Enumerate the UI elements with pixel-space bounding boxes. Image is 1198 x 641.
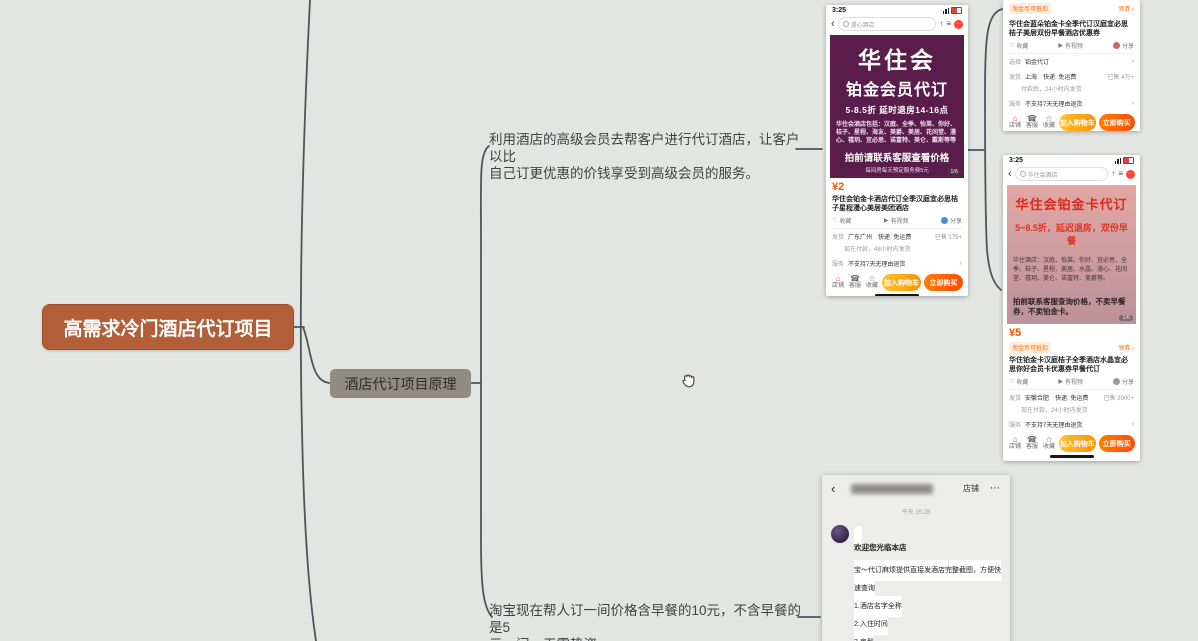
mindmap-canvas[interactable]: 高需求冷门酒店代订项目 酒店代订项目原理 利用酒店的高级会员去帮客户进行代订酒店… [0, 0, 1198, 641]
bar-service-label: 客服 [1026, 123, 1038, 130]
chip-video: 有视频 [891, 216, 909, 225]
screenshot-taobao-listing-2[interactable]: 淘金币可抵扣 领券 › 华住会蓝朵铂金卡全季代订汉庭宜必思桔子美居双份早餐酒店优… [1003, 0, 1140, 131]
sold-count: 已售 175+ [935, 232, 962, 241]
bar-shop-label: 店铺 [832, 283, 844, 290]
bar-service-label: 客服 [849, 283, 861, 290]
avatar [1113, 378, 1120, 385]
chip-video: 有视频 [1065, 377, 1083, 386]
add-to-cart-button: 加入购物车 [1059, 435, 1096, 452]
home-indicator [1050, 455, 1094, 458]
chevron-right-icon: › [1132, 7, 1134, 13]
more-icon: ⋯ [990, 483, 1001, 494]
customer-service-icon: ☎ [1027, 436, 1037, 444]
product-banner-pink: 华住会铂金卡代订 5~8.5折，延迟退房，双份早餐 华住酒店：汉庭、怡莱、你好、… [1007, 185, 1136, 324]
search-bar: 华住会酒店 [1015, 167, 1109, 181]
account-badge-icon: ⋯ [954, 20, 963, 29]
product-title: 华住会蓝朵铂金卡全季代订汉庭宜必思桔子美居双份早餐酒店优惠券 [1009, 20, 1134, 38]
root-node-label: 高需求冷门酒店代订项目 [63, 314, 272, 341]
image-page-badge: 1/6 [1119, 315, 1133, 321]
branch-node-label: 酒店代订项目原理 [345, 374, 457, 394]
banner-cta: 拍前请联系客服查看价格 [834, 150, 960, 164]
service-value: 不支持7天无理由退货 [1025, 99, 1082, 108]
banner-fee: 每间房每天预定服务费5元 [834, 166, 960, 174]
customer-service-icon: ☎ [1027, 115, 1037, 123]
blurred-shop-name [851, 484, 933, 494]
banner-subtitle: 5-8.5折 延时退房14-16点 [834, 104, 960, 116]
status-bar: 3:25 [826, 5, 968, 14]
status-time: 3:25 [832, 7, 846, 14]
chip-share: 分享 [1122, 377, 1134, 386]
chevron-right-icon: › [1132, 100, 1134, 107]
service-label: 服务 [1009, 420, 1021, 429]
coupon-link: 领券 [1118, 7, 1130, 13]
search-bar: 漫心酒店 [838, 17, 937, 31]
service-value: 不支持7天无理由退货 [848, 259, 905, 268]
banner-subtitle: 5~8.5折，延迟退房，双份早餐 [1013, 221, 1130, 247]
service-label: 服务 [832, 259, 844, 268]
bar-favorite-label: 收藏 [866, 283, 878, 290]
video-icon: ▶ [1058, 42, 1063, 49]
screenshot-taobao-listing-1[interactable]: 3:25 ‹ 漫心酒店 ↑ ≡ ⋯ 华住会 铂金会员代订 5-8.5折 延时退房… [826, 5, 968, 296]
sold-count: 已售 3000+ [1103, 393, 1134, 402]
heart-icon: ♡ [1009, 378, 1014, 385]
product-title: 华住会铂金卡酒店代订全季汉庭宜必思桔子星程漫心美居美团酒店 [832, 195, 962, 213]
bar-shop-label: 店铺 [1009, 123, 1021, 130]
coin-tag: 淘金币可抵扣 [1009, 3, 1051, 14]
back-icon: ‹ [1008, 169, 1012, 180]
heart-icon: ♡ [832, 217, 837, 224]
chat-message: 宝～代订麻烦提供直接发酒店完整截图，方便快速查询 1.酒店名字全称 2.入住时间… [854, 567, 1001, 641]
bar-favorite-label: 收藏 [1043, 123, 1055, 130]
chevron-right-icon: › [960, 260, 962, 267]
grab-cursor-icon [679, 371, 698, 390]
search-text: 漫心酒店 [851, 20, 875, 29]
pay-note: 现在付款，48小时内发货 [826, 244, 968, 256]
note-taobao-price[interactable]: 淘宝现在帮人订一间价格含早餐的10元，不含早餐的是5 元一间。无需垫资 [489, 602, 809, 641]
product-price: ¥2 [832, 181, 962, 193]
shop-icon: ⌂ [1013, 115, 1018, 123]
video-icon: ▶ [1058, 378, 1063, 385]
chip-share: 分享 [950, 216, 962, 225]
pay-note: 付款后，24小时内发货 [1003, 84, 1140, 96]
cart-icon: ≡ [946, 20, 951, 28]
cart-icon: ≡ [1118, 170, 1123, 178]
branch-node-principle[interactable]: 酒店代订项目原理 [330, 369, 471, 398]
heart-icon: ♡ [1009, 42, 1014, 49]
ship-label: 发货 [1009, 72, 1021, 81]
customer-service-icon: ☎ [850, 275, 860, 283]
ship-value: 广东广州 快递: 免运费 [848, 232, 911, 241]
battery-icon [1123, 157, 1134, 164]
status-bar: 3:25 [1003, 155, 1140, 164]
screenshot-chat[interactable]: ‹ 店铺 ⋯ 今天 15:28 欢迎您光临本店 宝～代订麻烦提供直接发酒店完整截… [822, 475, 1010, 641]
banner-cta: 拍前联系客服查询价格，不卖早餐券，不卖铂金卡。 [1013, 297, 1130, 317]
ship-label: 发货 [832, 232, 844, 241]
bar-shop-label: 店铺 [1009, 444, 1021, 451]
chevron-right-icon: › [1132, 58, 1134, 65]
chat-bubble: 欢迎您光临本店 宝～代订麻烦提供直接发酒店完整截图，方便快速查询 1.酒店名字全… [854, 526, 1001, 641]
chip-video: 有视频 [1065, 41, 1083, 50]
sold-count: 已售 4万+ [1107, 72, 1134, 81]
coupon-link: 领券 [1118, 346, 1130, 352]
chat-timestamp: 今天 15:28 [822, 507, 1010, 516]
image-page-badge: 1/6 [947, 169, 961, 175]
account-badge-icon: ⋯ [1126, 170, 1135, 179]
signal-icon [1115, 158, 1122, 164]
banner-title: 华住会铂金卡代订 [1013, 194, 1130, 213]
buy-now-button: 立即购买 [924, 274, 963, 291]
bar-service-label: 客服 [1026, 444, 1038, 451]
buy-now-button: 立即购买 [1099, 114, 1136, 131]
ship-value: 上海 快递: 免运费 [1025, 72, 1076, 81]
chevron-right-icon: › [1132, 421, 1134, 428]
chat-welcome: 欢迎您光临本店 [854, 543, 1001, 554]
search-text: 华住会酒店 [1028, 170, 1058, 179]
share-icon: ↑ [939, 20, 943, 28]
chip-favorite: 收藏 [1016, 377, 1028, 386]
sku-value: 铂金代订 [1025, 57, 1049, 66]
product-banner-purple: 华住会 铂金会员代订 5-8.5折 延时退房14-16点 华住会酒店包括：汉庭、… [830, 35, 964, 178]
buy-now-button: 立即购买 [1099, 435, 1136, 452]
shop-avatar [831, 525, 849, 543]
chevron-right-icon: › [1132, 346, 1134, 352]
chip-share: 分享 [1122, 41, 1134, 50]
back-icon: ‹ [831, 19, 835, 30]
banner-brand-list: 华住酒店：汉庭、怡莱、你好、宜必思、全季、桔子、星程、美居、水晶、漫心、花间堂、… [1013, 257, 1130, 284]
star-icon: ☆ [1045, 115, 1052, 123]
status-time: 3:25 [1009, 157, 1023, 164]
chip-favorite: 收藏 [1016, 41, 1028, 50]
service-label: 服务 [1009, 99, 1021, 108]
banner-brand: 华住会 [834, 41, 960, 75]
service-value: 不支持7天无理由退货 [1025, 420, 1082, 429]
banner-brand-list: 华住会酒店包括：汉庭、全季、怡莱、你好、桔子、星程、海友、美爵、美居、花间堂、漫… [836, 121, 958, 145]
banner-title: 铂金会员代订 [834, 76, 960, 100]
bar-favorite-label: 收藏 [1043, 444, 1055, 451]
search-icon [843, 21, 849, 27]
star-icon: ☆ [868, 275, 875, 283]
root-node[interactable]: 高需求冷门酒店代订项目 [42, 304, 294, 350]
home-indicator [875, 294, 919, 296]
pay-note: 现在付款，24小时内发货 [1003, 405, 1140, 417]
note-member-booking[interactable]: 利用酒店的高级会员去帮客户进行代订酒店，让客户以比 自己订更优惠的价钱享受到高级… [489, 131, 809, 182]
share-icon: ↑ [1111, 170, 1115, 178]
product-title: 华住铂金卡汉庭桔子全季酒店水晶宜必思你好会员卡优惠券早餐代订 [1009, 356, 1134, 374]
star-icon: ☆ [1045, 436, 1052, 444]
add-to-cart-button: 加入购物车 [1059, 114, 1096, 131]
signal-icon [943, 8, 950, 14]
battery-icon [951, 7, 962, 14]
shop-icon: ⌂ [1013, 436, 1018, 444]
back-icon: ‹ [831, 482, 835, 495]
avatar [1113, 42, 1120, 49]
ship-value: 安徽合肥 快递: 免运费 [1025, 393, 1088, 402]
avatar [941, 217, 948, 224]
chip-favorite: 收藏 [839, 216, 851, 225]
shop-button: 店铺 [963, 483, 979, 494]
add-to-cart-button: 加入购物车 [882, 274, 921, 291]
shop-icon: ⌂ [836, 275, 841, 283]
search-icon [1020, 171, 1026, 177]
video-icon: ▶ [884, 217, 889, 224]
coin-tag: 淘金币可抵扣 [1009, 342, 1051, 353]
ship-label: 发货 [1009, 393, 1021, 402]
sku-label: 选择 [1009, 57, 1021, 66]
screenshot-taobao-listing-3[interactable]: 3:25 ‹ 华住会酒店 ↑ ≡ ⋯ 华住会铂金卡代订 5~8.5折，延迟退房，… [1003, 155, 1140, 461]
product-price: ¥5 [1009, 327, 1134, 339]
